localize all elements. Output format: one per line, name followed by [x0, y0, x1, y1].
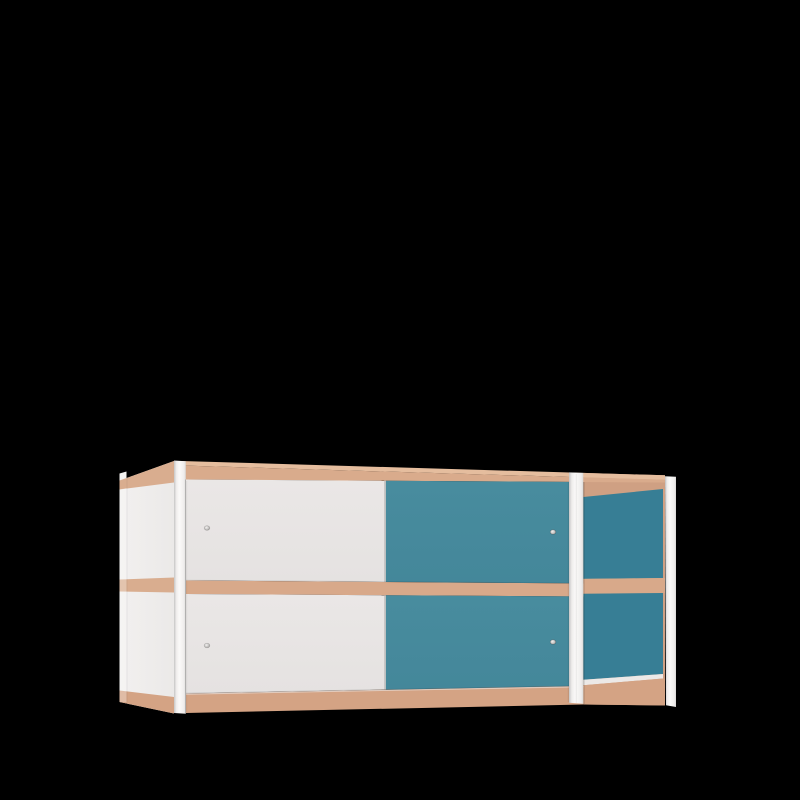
- back-left-post-highlight: [120, 488, 127, 702]
- cabinet: [120, 461, 677, 714]
- open-compartment: [583, 473, 665, 706]
- compartment-back-panel-lower: [583, 593, 663, 680]
- door-gap-lower: [384, 595, 386, 690]
- post-front-left: [174, 461, 186, 714]
- black-background: [0, 0, 800, 800]
- door-white-upper: [186, 480, 384, 583]
- side-middle-shelf-edge: [120, 578, 175, 593]
- door-teal-upper: [386, 481, 569, 584]
- door-teal-lower: [386, 595, 569, 689]
- knob-teal-lower: [550, 640, 556, 645]
- compartment-middle-shelf-edge: [583, 578, 665, 594]
- post-front-right: [665, 476, 676, 707]
- door-white-lower: [186, 594, 384, 694]
- front-face: [186, 480, 583, 714]
- left-side-panel: [120, 461, 175, 714]
- door-gap-upper: [384, 481, 386, 582]
- compartment-back-panel-upper: [583, 489, 663, 579]
- sideboard-cabinet-render: [0, 0, 800, 800]
- knob-white-upper: [204, 526, 210, 531]
- knob-teal-upper: [550, 530, 556, 535]
- knob-white-lower: [204, 643, 210, 648]
